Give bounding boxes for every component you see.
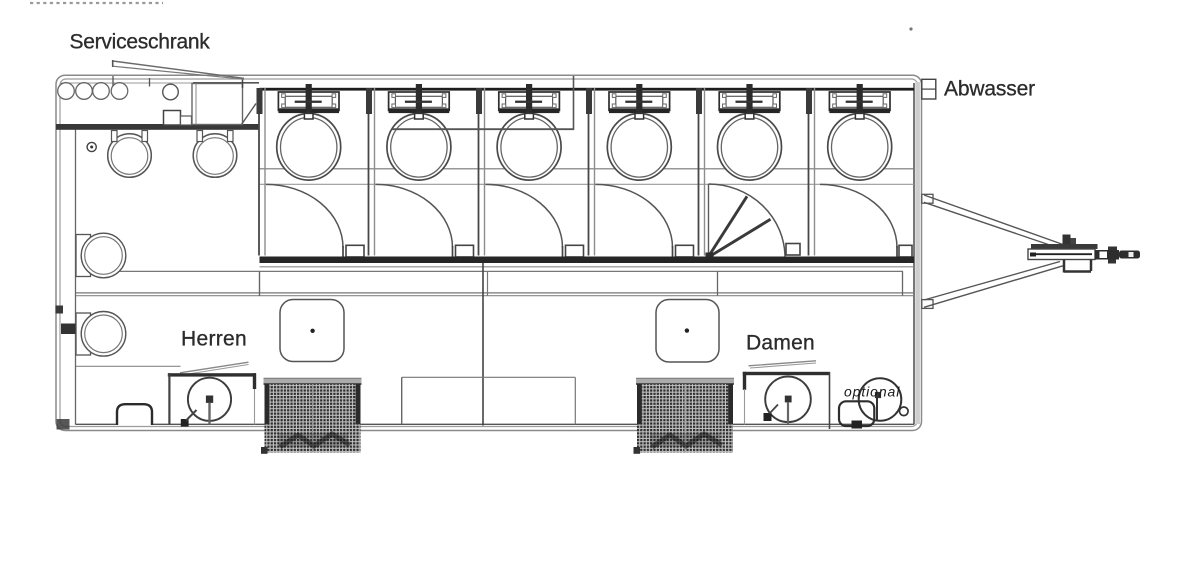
svg-text:Herren: Herren <box>181 328 247 351</box>
svg-text:Abwasser: Abwasser <box>944 78 1035 101</box>
svg-text:Serviceschrank: Serviceschrank <box>70 31 211 54</box>
svg-text:optional: optional <box>844 384 900 400</box>
svg-text:Damen: Damen <box>746 332 815 355</box>
